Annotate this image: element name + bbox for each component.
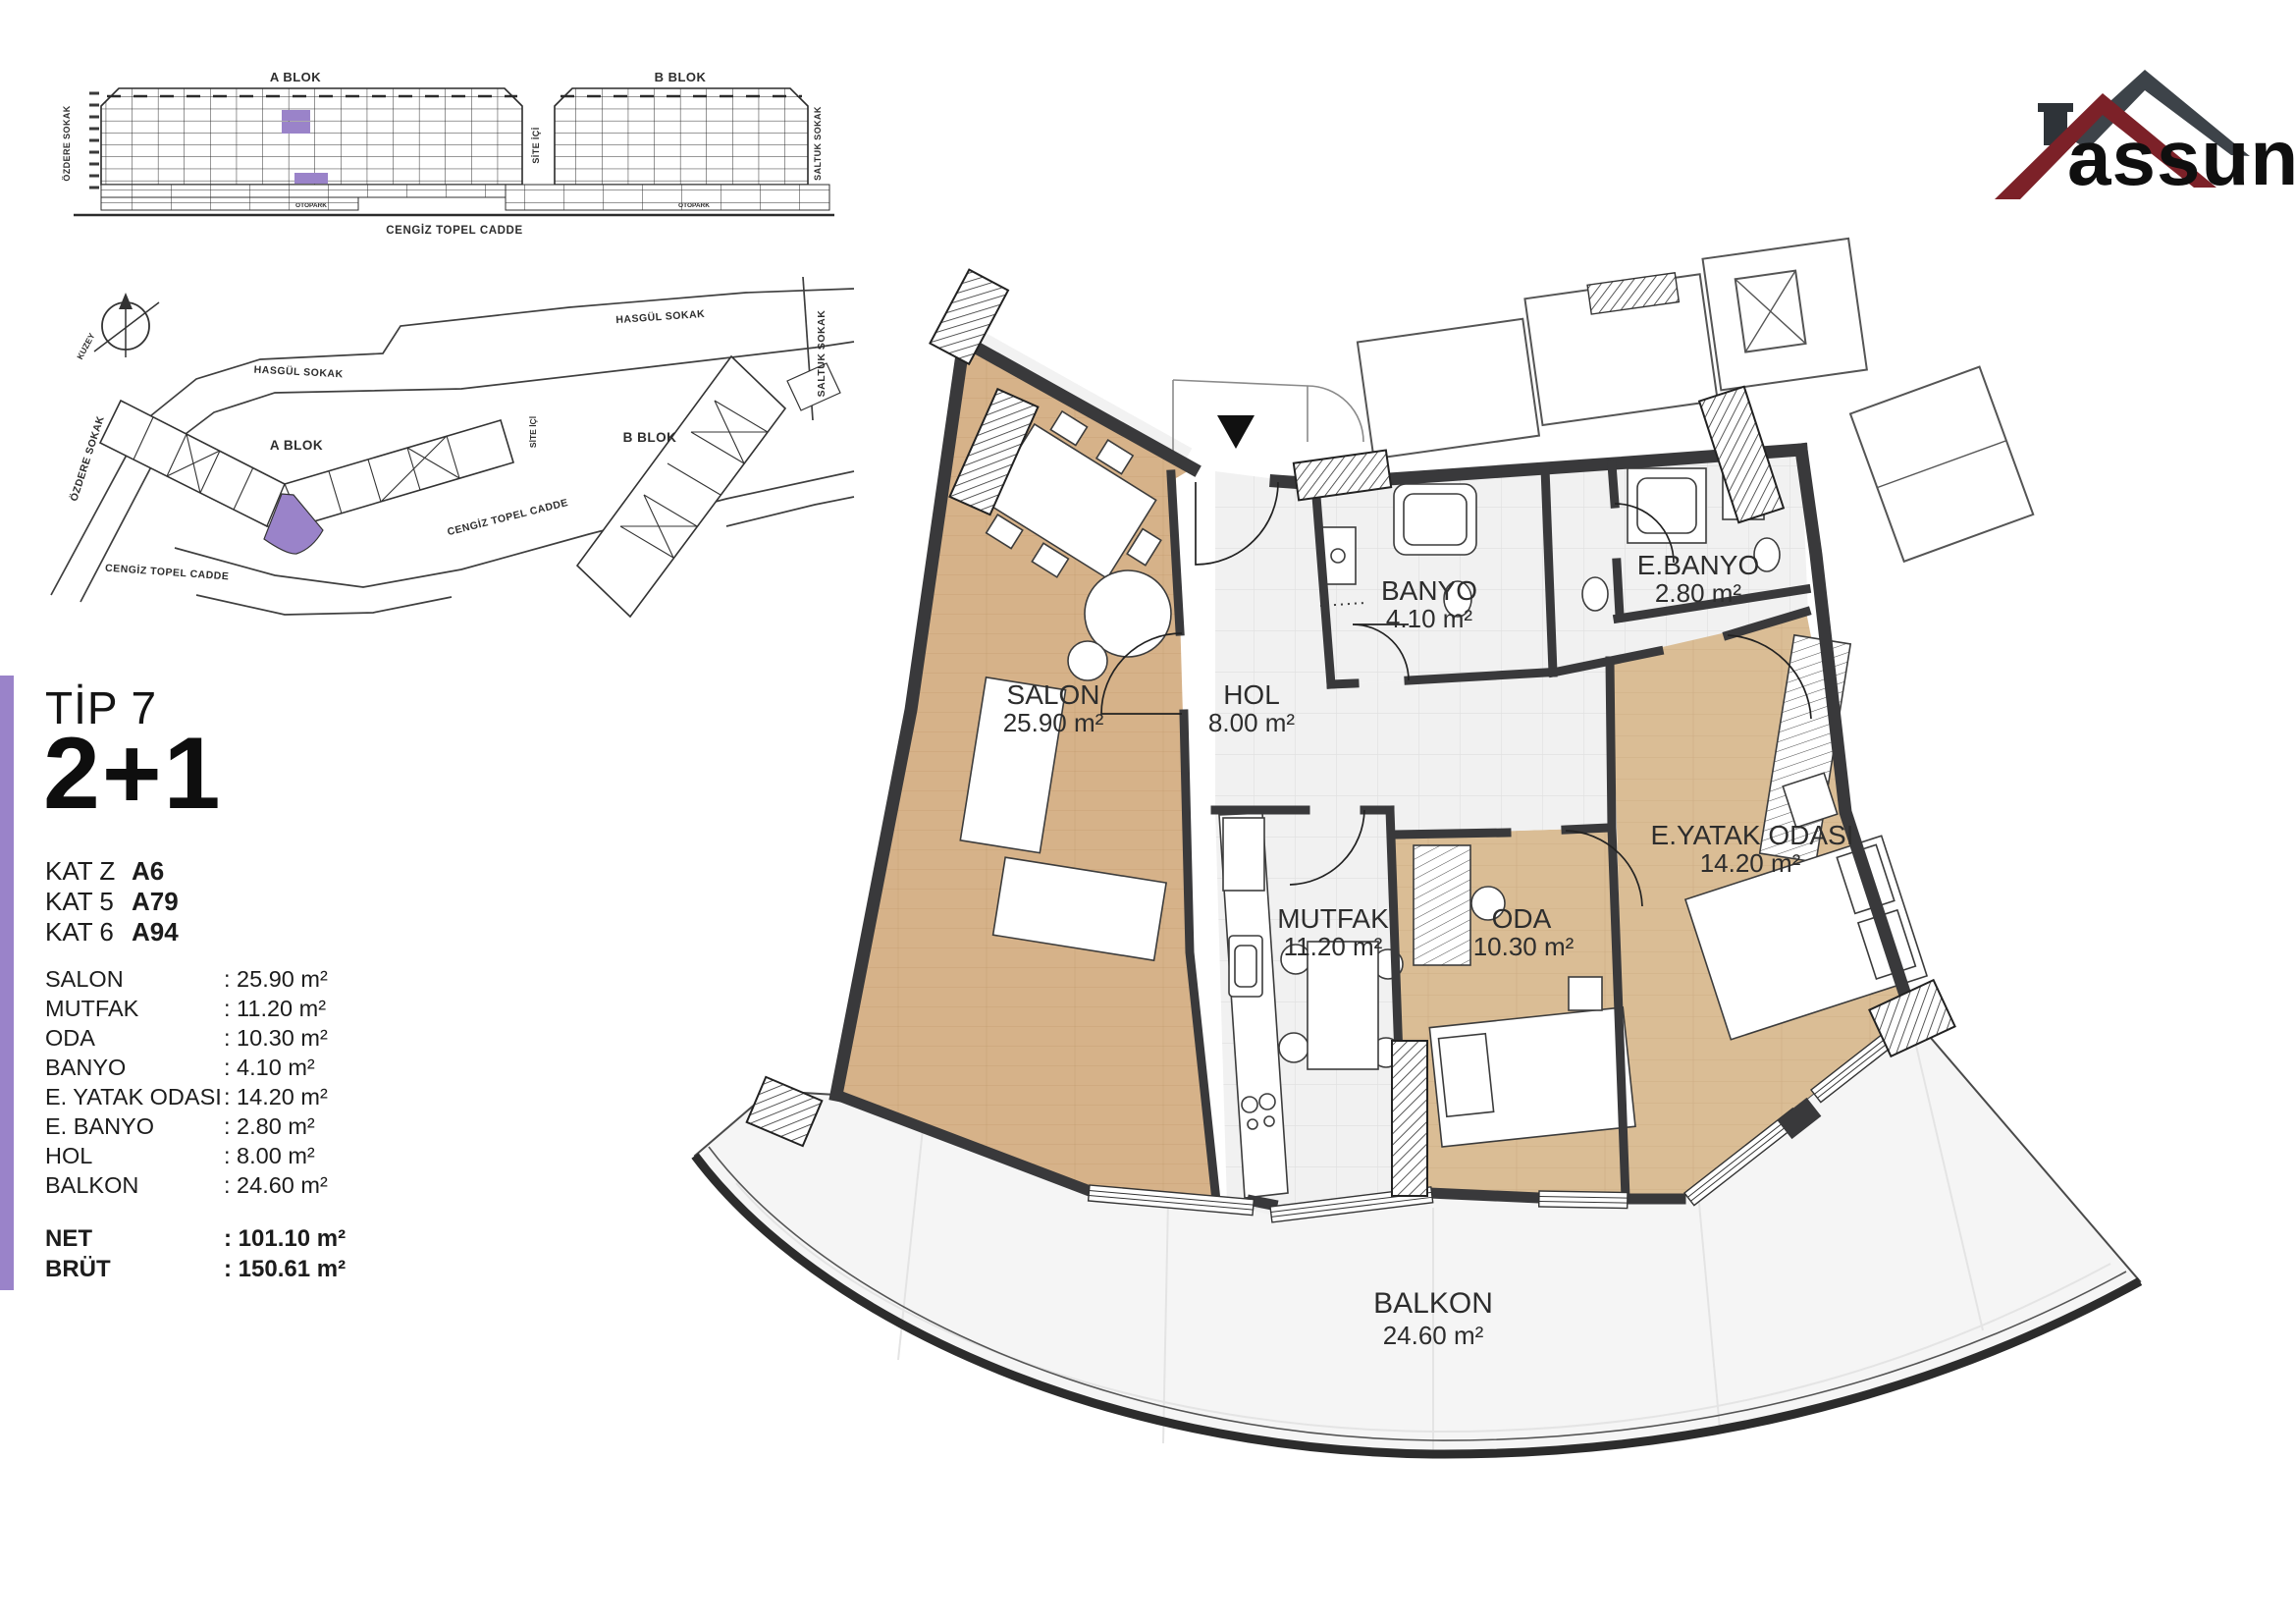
unit-number: A94 [132,917,179,947]
site-ici-map-label: SİTE İÇİ [528,416,538,448]
total-value: : 150.61 m² [224,1254,346,1284]
logo-wordmark: assun [2067,114,2296,201]
floor-unit-list: KAT ZA6 KAT 5A79 KAT 6A94 [45,856,179,947]
a-blok-elevation-label: A BLOK [270,70,321,84]
room-area: : 25.90 m² [224,964,328,994]
room-name: MUTFAK [45,994,224,1023]
elevation-diagram: A BLOK B BLOK ÖZDERE SOKAK SİTE İÇİ SALT… [54,37,839,253]
room-label-mutfak: MUTFAK [1277,903,1389,934]
ebanyo-toilet [1582,577,1608,611]
room-name: BANYO [45,1053,224,1082]
room-label-oda: ODA [1492,903,1552,934]
site-ici-label: SİTE İÇİ [531,127,541,163]
accent-bar [0,676,14,1290]
highlight-katz [294,173,328,184]
total-row: NET: 101.10 m² [45,1223,346,1254]
north-compass-icon [94,293,159,357]
otopark-b-label: OTOPARK [678,202,710,209]
total-label: BRÜT [45,1254,224,1284]
room-name: ODA [45,1023,224,1053]
floor-row: KAT ZA6 [45,856,179,887]
b-blok-elevation [555,88,808,185]
room-name: E. BANYO [45,1111,224,1141]
a-blok-map-label: A BLOK [270,438,323,453]
unit-number: A6 [132,856,164,886]
hasgul-label-1: HASGÜL SOKAK [253,363,344,381]
a-blok-elevation [101,88,522,185]
floor-tick-marks [89,93,99,188]
ozdere-map-label: ÖZDERE SOKAK [67,414,106,503]
saltuk-street-label: SALTUK SOKAK [813,106,823,181]
b-blok-map-label: B BLOK [623,430,677,445]
room-row: E. YATAK ODASI: 14.20 m² [45,1082,328,1111]
room-label-banyo: BANYO [1381,575,1477,606]
floor-plan: SALON 25.90 m² HOL 8.00 m² BANYO 4.10 m²… [677,260,2179,1537]
column-hatch [1392,1041,1427,1196]
room-area: : 24.60 m² [224,1170,328,1200]
ozdere-street-label: ÖZDERE SOKAK [62,105,72,181]
brand-logo: assun [1983,54,2277,191]
oda-bed [1429,1007,1635,1147]
room-name: E. YATAK ODASI [45,1082,224,1111]
room-area: : 10.30 m² [224,1023,328,1053]
room-name: BALKON [45,1170,224,1200]
room-label-ebanyo: E.BANYO [1637,550,1759,580]
room-label-hol: HOL [1223,679,1280,710]
otopark-a-label: OTOPARK [295,202,327,209]
room-name: SALON [45,964,224,994]
room-area: : 8.00 m² [224,1141,315,1170]
highlight-kat6 [282,110,310,121]
floor-label: KAT Z [45,856,132,887]
oda-nightstand [1569,977,1602,1010]
room-label-eyatak: E.YATAK ODASI [1651,820,1854,850]
kuzey-label: KUZEY [75,331,97,360]
room-row: BALKON: 24.60 m² [45,1170,328,1200]
room-area-balkon: 24.60 m² [1383,1321,1484,1350]
room-label-balkon: BALKON [1373,1287,1493,1320]
room-row: SALON: 25.90 m² [45,964,328,994]
side-table [1068,641,1107,680]
room-area-list: SALON: 25.90 m² MUTFAK: 11.20 m² ODA: 10… [45,964,328,1200]
floor-label: KAT 5 [45,887,132,917]
room-area-eyatak: 14.20 m² [1700,848,1801,878]
b-blok-elevation-label: B BLOK [655,70,707,84]
unit-layout-label: 2+1 [43,723,222,825]
floor-row: KAT 5A79 [45,887,179,917]
unit-number: A79 [132,887,179,916]
room-area-ebanyo: 2.80 m² [1655,578,1741,608]
highlight-kat5 [282,122,310,134]
oda-wardrobe [1414,845,1470,965]
entry-arrow-icon [1217,415,1255,449]
room-area: : 2.80 m² [224,1111,315,1141]
room-area-oda: 10.30 m² [1473,932,1575,961]
total-value: : 101.10 m² [224,1223,346,1254]
room-area-mutfak: 11.20 m² [1284,932,1383,961]
room-area-banyo: 4.10 m² [1386,604,1472,633]
cengiz-map-label-2: CENGİZ TOPEL CADDE [446,496,569,538]
totals-list: NET: 101.10 m² BRÜT: 150.61 m² [45,1223,346,1284]
elevation-basement [101,185,829,210]
room-area-salon: 25.90 m² [1003,708,1104,737]
room-area: : 11.20 m² [224,994,326,1023]
room-row: MUTFAK: 11.20 m² [45,994,328,1023]
room-name: HOL [45,1141,224,1170]
room-label-salon: SALON [1007,679,1100,710]
floor-label: KAT 6 [45,917,132,947]
cengiz-cadde-elevation-label: CENGİZ TOPEL CADDE [386,224,522,237]
room-row: ODA: 10.30 m² [45,1023,328,1053]
room-area-hol: 8.00 m² [1208,708,1295,737]
total-label: NET [45,1223,224,1254]
room-area: : 14.20 m² [224,1082,328,1111]
a-blok-building [100,401,513,526]
floor-row: KAT 6A94 [45,917,179,947]
room-row: HOL: 8.00 m² [45,1141,328,1170]
room-area: : 4.10 m² [224,1053,315,1082]
total-row: BRÜT: 150.61 m² [45,1254,346,1284]
room-row: BANYO: 4.10 m² [45,1053,328,1082]
room-row: E. BANYO: 2.80 m² [45,1111,328,1141]
floorplan-brochure-page: { "accent_color": "#9a83c9", "wall_color… [0,0,2296,1624]
cengiz-map-label-1: CENGİZ TOPEL CADDE [105,562,230,583]
